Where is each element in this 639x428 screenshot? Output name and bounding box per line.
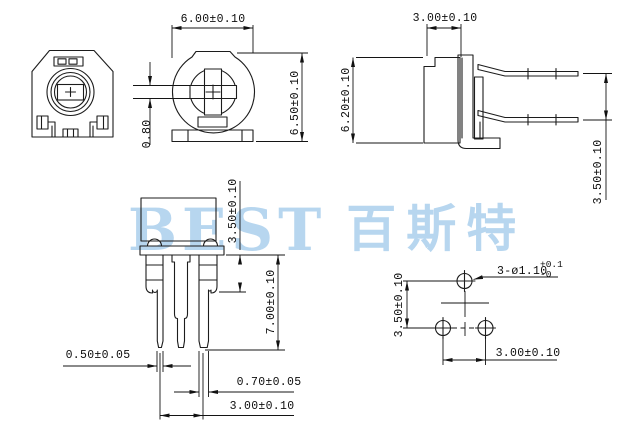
drawing-sheet: BEST百斯特 [0,0,639,428]
dim-front-width: 6.00±0.10 [181,13,246,26]
dim-side-height: 6.20±0.10 [340,68,353,133]
dim-outer-pin-width: 0.50±0.05 [66,349,131,362]
perspective-view [32,51,113,138]
dim-pin-length: 7.00±0.10 [265,270,278,335]
left-pin [146,255,163,348]
dim-standoff: 3.50±0.10 [227,179,240,244]
dim-side-depth: 3.00±0.10 [413,12,478,25]
front-view: 6.00±0.10 6.50±0.10 0.80 [133,13,308,148]
centerline-mark [441,291,489,336]
body-rect [141,198,216,241]
hole-tolerance-lower: -0 [540,269,552,280]
right-pin [199,255,217,348]
dim-center-pin-width: 0.70±0.05 [237,376,302,389]
dim-pin-pitch: 3.00±0.10 [230,400,295,413]
side-view: 3.00±0.10 6.20±0.10 3.50±0.10 [340,12,612,204]
dim-front-height: 6.50±0.10 [289,71,302,136]
lower-pin [478,111,578,139]
pcb-layout-view: 3-ø1.10 +0.1 -0 3.50±0.10 3.00±0.10 [393,259,563,365]
front-pins-view: 3.50±0.10 7.00±0.10 0.50±0.05 0.70±0.05 … [63,179,301,420]
body-outline-side [424,58,460,144]
dim-front-slot: 0.80 [141,120,154,149]
dim-column-spacing: 3.00±0.10 [496,347,561,360]
technical-drawing: 6.00±0.10 6.50±0.10 0.80 3.00±0.10 [0,0,639,428]
upper-pin [478,65,578,80]
flange [140,246,224,255]
center-pin [172,255,190,348]
dim-side-pin-span: 3.50±0.10 [592,140,605,205]
